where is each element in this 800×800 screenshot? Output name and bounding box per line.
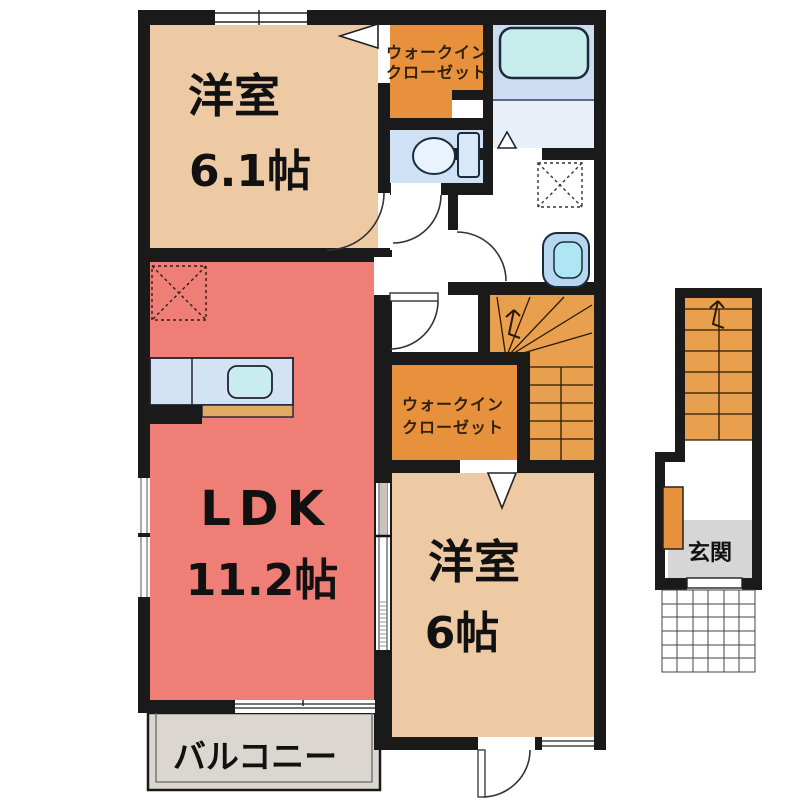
bedroom1-size-label: 6.1帖 — [189, 146, 311, 197]
wic1-label-line2: クローゼット — [386, 63, 488, 82]
entrance-door-leaf — [687, 578, 742, 588]
kitchen-counter — [148, 358, 293, 424]
door-gap-washroom — [448, 230, 458, 280]
sliding-door-ldk-bedroom2 — [374, 483, 392, 650]
kitchen-half-wall — [148, 405, 202, 424]
wic2-label-line2: クローゼット — [402, 418, 504, 437]
bedroom2-size-label: 6帖 — [425, 608, 500, 659]
wall-stairs-bottom — [517, 460, 606, 473]
window-bedroom1-top — [215, 10, 307, 25]
floor-plan-canvas: 洋室 6.1帖 ウォークイン クローゼット LDK 11.2帖 ウォークイン ク… — [0, 0, 800, 800]
window-ldk-west — [138, 478, 150, 597]
wall-bedroom1-ldk — [150, 248, 390, 262]
door-leaf-ldk — [390, 293, 438, 301]
porch-tiles — [662, 590, 755, 672]
wall-right — [594, 10, 606, 750]
opening-ldk — [374, 257, 392, 295]
window-bedroom2-south — [542, 737, 594, 750]
wall-wic2-bottom — [374, 460, 460, 473]
wall-left — [138, 10, 150, 713]
balcony-label: バルコニー — [173, 737, 337, 776]
door-leaf-bedroom2-south — [478, 750, 485, 797]
wall-wic2-east — [517, 352, 530, 473]
kitchen-counter-front — [202, 405, 293, 417]
ldk-name-label: LDK — [200, 481, 332, 537]
wic2-label-line1: ウォークイン — [402, 395, 504, 414]
wall-top — [138, 10, 606, 25]
door-gap-bedroom2-south — [478, 737, 535, 750]
wall-wic1-notch — [452, 90, 493, 100]
wic1-notch-space — [452, 100, 483, 118]
stairs-run-fill — [530, 365, 594, 460]
washing-machine-area — [538, 163, 582, 207]
entrance-annex — [655, 288, 762, 672]
door-gap-toilet — [391, 183, 441, 195]
door-arc-bedroom2-south — [482, 750, 530, 797]
room-bedroom1 — [150, 25, 390, 248]
entrance-label: 玄関 — [688, 540, 732, 566]
floor-plan: 洋室 6.1帖 ウォークイン クローゼット LDK 11.2帖 ウォークイン ク… — [0, 0, 800, 800]
opening-wic2-bedroom2 — [460, 460, 517, 473]
wall-washroom-west — [448, 195, 458, 230]
wic1-label-line1: ウォークイン — [386, 43, 488, 62]
room-bedroom2 — [392, 473, 594, 737]
door-arc-ldk — [390, 301, 438, 349]
kitchen-sink — [228, 366, 272, 398]
bedroom2-name-label: 洋室 — [428, 535, 520, 589]
window-balcony-slider — [235, 700, 375, 713]
shoe-cabinet — [663, 487, 683, 549]
door-arc-toilet — [393, 195, 441, 243]
bathtub-icon — [500, 28, 588, 78]
ldk-size-label: 11.2帖 — [186, 555, 339, 606]
bedroom1-name-label: 洋室 — [188, 69, 280, 123]
wall-wic1-toilet — [390, 118, 493, 130]
washbasin-icon — [543, 233, 589, 287]
door-gap-bathroom — [493, 148, 542, 160]
door-arc-washroom — [457, 232, 506, 281]
